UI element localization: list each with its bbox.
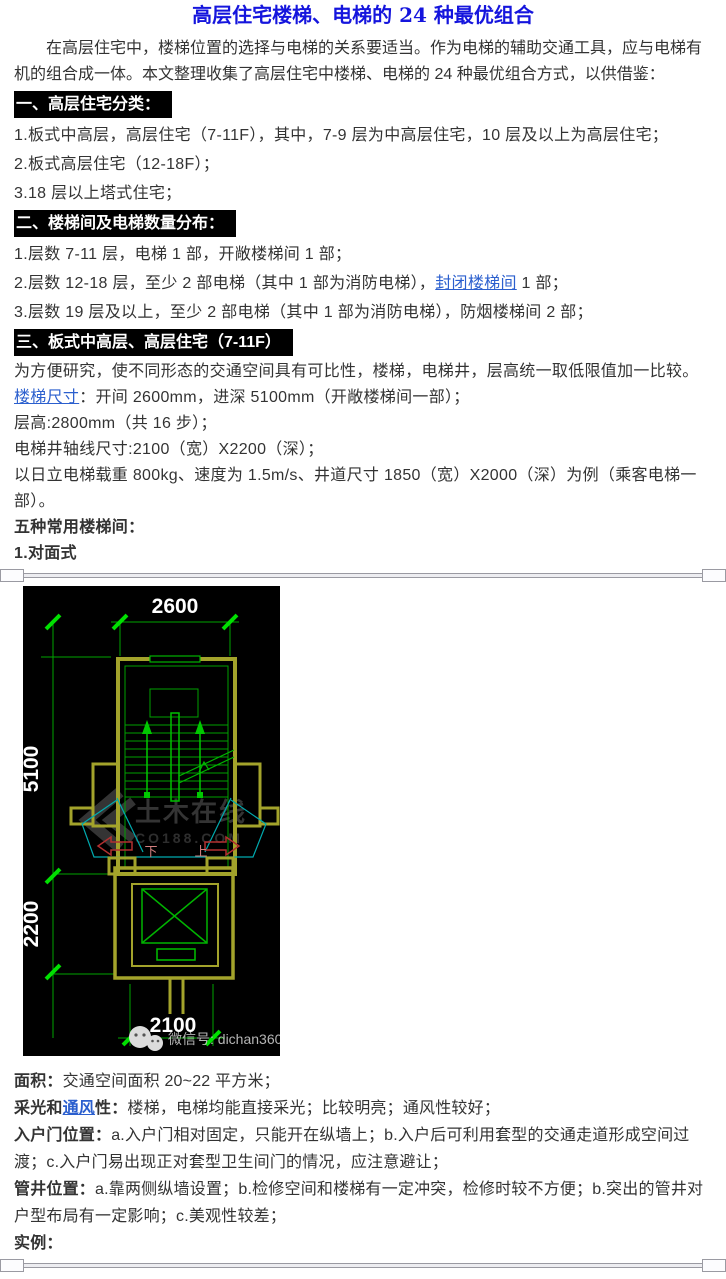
section2-item1: 1.层数 7-11 层，电梯 1 部，开敞楼梯间 1 部； <box>14 240 712 269</box>
section3-heading: 三、板式中高层、高层住宅（7-11F） <box>14 329 293 356</box>
stair-window <box>150 656 200 662</box>
section2-heading-row: 二、楼梯间及电梯数量分布： <box>14 210 712 237</box>
section2-item2: 2.层数 12-18 层，至少 2 部电梯（其中 1 部为消防电梯），封闭楼梯间… <box>14 269 712 298</box>
figure-wrap: 土木在线 CO188.COM <box>0 586 726 1257</box>
note-example-label: 实例： <box>14 1235 63 1252</box>
cad-floorplan-svg: 土木在线 CO188.COM <box>23 586 280 1056</box>
divider-line <box>0 1263 726 1268</box>
dim-2600-label: 2600 <box>152 595 199 618</box>
section-divider-bottom <box>0 1259 726 1272</box>
note-light-label-pre: 采光和 <box>14 1100 63 1117</box>
link-enclosed-stairwell[interactable]: 封闭楼梯间 <box>435 275 517 292</box>
stair-up-label: 上 <box>194 844 207 859</box>
section1-heading-row: 一、高层住宅分类： <box>14 91 712 118</box>
section1-item1: 1.板式中高层，高层住宅（7-11F），其中，7-9 层为中高层住宅，10 层及… <box>14 121 712 150</box>
link-ventilation[interactable]: 通风 <box>63 1100 95 1117</box>
section2-item3: 3.层数 19 层及以上，至少 2 部电梯（其中 1 部为消防电梯），防烟楼梯间… <box>14 298 712 327</box>
section2-item2-tail: 1 部； <box>517 275 568 292</box>
section2-item2-text: 2.层数 12-18 层，至少 2 部电梯（其中 1 部为消防电梯）， <box>14 275 435 292</box>
note-light-text: 楼梯，电梯均能直接采光；比较明亮；通风性较好； <box>127 1100 500 1117</box>
section3-p7: 1.对面式 <box>14 541 712 567</box>
type1-face-to-face-label: 1.对面式 <box>14 545 77 562</box>
section3-p4: 电梯井轴线尺寸:2100（宽）X2200（深）； <box>14 437 712 463</box>
divider-line <box>0 573 726 578</box>
section1-item2: 2.板式高层住宅（12-18F）； <box>14 150 712 179</box>
divider-handle-left[interactable] <box>0 569 24 582</box>
section3-heading-row: 三、板式中高层、高层住宅（7-11F） <box>14 329 712 356</box>
note-light-label-post: 性： <box>95 1100 127 1117</box>
link-stair-dimensions[interactable]: 楼梯尺寸 <box>14 389 79 406</box>
five-stairwell-types-label: 五种常用楼梯间： <box>14 519 144 536</box>
note-example: 实例： <box>14 1230 712 1257</box>
dim-5100-label: 5100 <box>23 746 43 793</box>
section3-p1: 为方便研究，使不同形态的交通空间具有可比性，楼梯，电梯井，层高统一取低限值加一比… <box>14 359 712 385</box>
note-area-text: 交通空间面积 20~22 平方米； <box>63 1073 280 1090</box>
note-pipe-shaft: 管井位置：a.靠两侧纵墙设置；b.检修空间和楼梯有一定冲突，检修时较不方便；b.… <box>14 1176 712 1230</box>
section2-heading: 二、楼梯间及电梯数量分布： <box>14 210 236 237</box>
section1-heading: 一、高层住宅分类： <box>14 91 172 118</box>
dim-2200-label: 2200 <box>23 901 43 948</box>
divider-handle-left[interactable] <box>0 1259 24 1272</box>
note-light-ventilation: 采光和通风性：楼梯，电梯均能直接采光；比较明亮；通风性较好； <box>14 1095 712 1122</box>
cad-floorplan-image: 土木在线 CO188.COM <box>23 586 280 1056</box>
watermark-site-text: 土木在线 <box>135 797 247 827</box>
intro-paragraph: 在高层住宅中，楼梯位置的选择与电梯的关系要适当。作为电梯的辅助交通工具，应与电梯… <box>14 36 712 88</box>
note-pipe-shaft-label: 管井位置： <box>14 1181 95 1198</box>
note-entry-door-label: 入户门位置： <box>14 1127 111 1144</box>
section3-p2-text: ：开间 2600mm，进深 5100mm（开敞楼梯间一部）； <box>79 389 469 406</box>
article-page: 高层住宅楼梯、电梯的 24 种最优组合 在高层住宅中，楼梯位置的选择与电梯的关系… <box>0 0 726 1279</box>
divider-handle-right[interactable] <box>702 569 726 582</box>
note-area: 面积：交通空间面积 20~22 平方米； <box>14 1068 712 1095</box>
section3-p5: 以日立电梯载重 800kg、速度为 1.5m/s、井道尺寸 1850（宽）X20… <box>14 463 712 515</box>
divider-handle-right[interactable] <box>702 1259 726 1272</box>
note-area-label: 面积： <box>14 1073 63 1090</box>
wechat-id-text: 微信号: dichan360 <box>168 1031 280 1047</box>
stair-down-label: 下 <box>144 844 157 859</box>
section3-p3: 层高:2800mm（共 16 步）； <box>14 411 712 437</box>
note-pipe-shaft-text: a.靠两侧纵墙设置；b.检修空间和楼梯有一定冲突，检修时较不方便；b.突出的管井… <box>14 1181 703 1225</box>
page-title: 高层住宅楼梯、电梯的 24 种最优组合 <box>14 2 712 28</box>
section3-p2: 楼梯尺寸：开间 2600mm，进深 5100mm（开敞楼梯间一部）； <box>14 385 712 411</box>
section3-p6: 五种常用楼梯间： <box>14 515 712 541</box>
section1-item3: 3.18 层以上塔式住宅； <box>14 179 712 208</box>
section-divider-top <box>0 569 726 582</box>
note-entry-door-text: a.入户门相对固定，只能开在纵墙上；b.入户后可利用套型的交通走道形成空间过渡；… <box>14 1127 690 1171</box>
article-content: 高层住宅楼梯、电梯的 24 种最优组合 在高层住宅中，楼梯位置的选择与电梯的关系… <box>0 2 726 567</box>
note-entry-door: 入户门位置：a.入户门相对固定，只能开在纵墙上；b.入户后可利用套型的交通走道形… <box>14 1122 712 1176</box>
